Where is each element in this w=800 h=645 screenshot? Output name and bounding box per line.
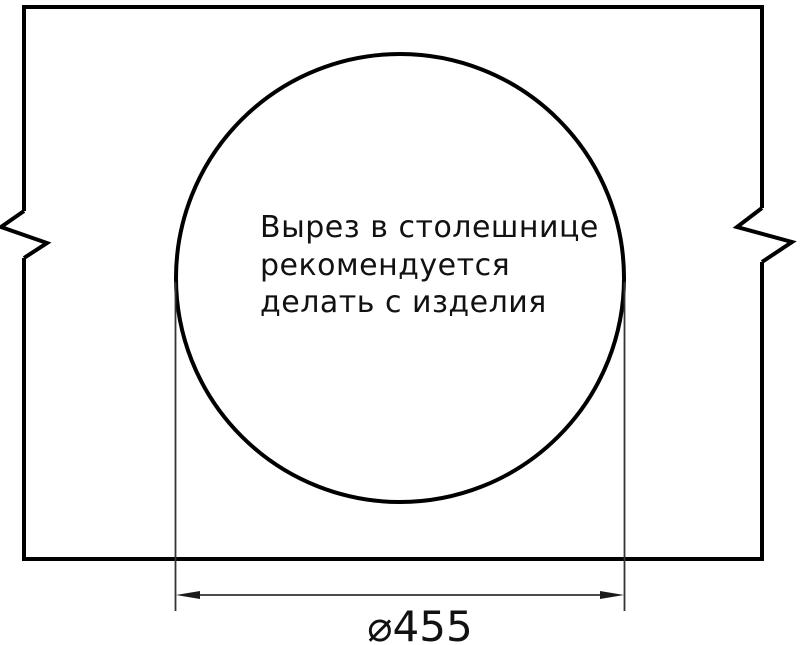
countertop-outline-top	[24, 7, 762, 211]
dimension-arrowhead-left	[176, 591, 200, 599]
drawing-svg: Вырез в столешнице рекомендуется делать …	[0, 0, 800, 645]
annotation-line-2: рекомендуется	[260, 248, 510, 283]
dimension-label: ⌀455	[367, 602, 472, 645]
break-mark-left	[1, 211, 47, 258]
technical-drawing: Вырез в столешнице рекомендуется делать …	[0, 0, 800, 645]
dimension-arrowhead-right	[600, 591, 624, 599]
annotation-line-3: делать с изделия	[260, 285, 547, 320]
break-mark-right	[737, 208, 792, 262]
annotation-line-1: Вырез в столешнице	[260, 210, 599, 245]
